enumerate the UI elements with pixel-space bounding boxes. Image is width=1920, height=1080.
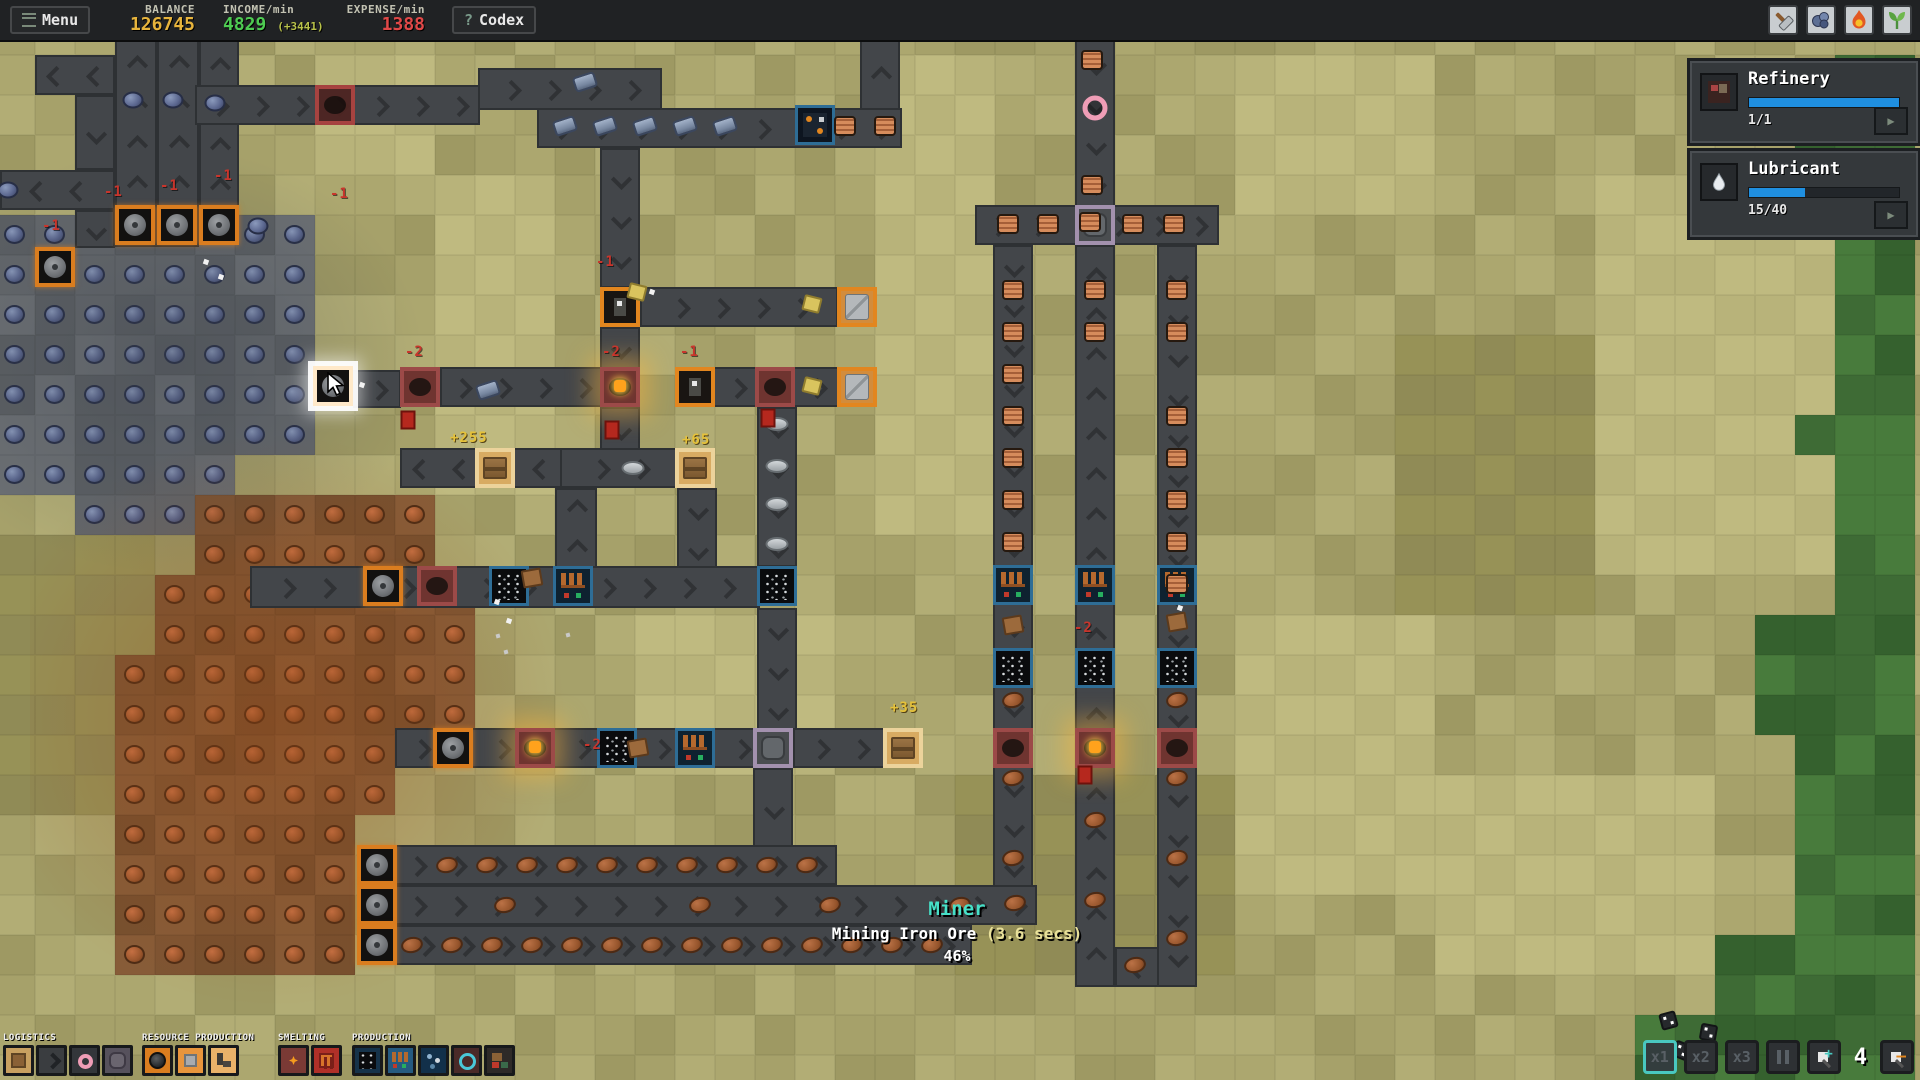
terrain-tile: [1595, 695, 1635, 735]
furnace-machine[interactable]: [993, 728, 1033, 768]
terrain-tile: [235, 895, 275, 935]
copper-ore-deposit: [124, 905, 145, 924]
terrain-tile: [1555, 775, 1595, 815]
terrain-tile: [1675, 935, 1715, 975]
miner-machine[interactable]: [115, 205, 155, 245]
terrain-tile: [875, 655, 915, 695]
storage-build-button[interactable]: [3, 1045, 34, 1076]
conveyor-belt[interactable]: [353, 370, 401, 408]
terrain-tile: [1795, 295, 1835, 335]
terrain-tile: [875, 575, 915, 615]
terrain-tile: [1435, 735, 1475, 775]
terrain-tile: [1595, 375, 1635, 415]
miner-machine[interactable]: [357, 925, 397, 965]
terrain-tile: [555, 295, 595, 335]
terrain-tile: [1755, 975, 1795, 1015]
iron-ore-deposit: [164, 305, 185, 324]
terrain-tile: [1315, 815, 1355, 855]
terrain-tile: [1715, 535, 1755, 575]
belt-arrow: [1004, 257, 1025, 278]
terrain-tile: [1235, 335, 1275, 375]
conveyor-belt[interactable]: [395, 885, 1037, 925]
conveyor-build-button[interactable]: [36, 1045, 67, 1076]
terrain-tile: [1435, 295, 1475, 335]
crusher-machine[interactable]: [1075, 648, 1115, 688]
terrain-tile: [1395, 655, 1435, 695]
belt-arrow: [1168, 467, 1189, 488]
terrain-tile: [795, 575, 835, 615]
terrain-tile: [1315, 335, 1355, 375]
miner-machine[interactable]: [35, 247, 75, 287]
terrain-tile: [1715, 335, 1755, 375]
miner-machine[interactable]: [357, 845, 397, 885]
terrain-tile: [1475, 135, 1515, 175]
conveyor-belt[interactable]: [35, 55, 115, 95]
crusher-machine[interactable]: [757, 566, 797, 606]
assembler-machine[interactable]: [1075, 565, 1115, 605]
terrain-tile: [1875, 975, 1915, 1015]
conveyor-belt[interactable]: [677, 488, 717, 570]
terrain-tile: [0, 695, 35, 735]
furnace-machine[interactable]: [755, 367, 795, 407]
terrain-tile: [1155, 1015, 1195, 1055]
terrain-tile: [155, 575, 195, 615]
terrain-tile: [1515, 495, 1555, 535]
furnace-machine[interactable]: [515, 728, 555, 768]
belt-arrow: [636, 578, 657, 599]
terrain-tile: [475, 175, 515, 215]
terrain-tile: [1235, 535, 1275, 575]
terrain-tile: [75, 815, 115, 855]
terrain-tile: [0, 535, 35, 575]
platem-build-button[interactable]: [175, 1045, 206, 1076]
extractor-machine[interactable]: [675, 367, 715, 407]
terrain-tile: [1755, 775, 1795, 815]
floating-text: -1: [330, 186, 349, 202]
terrain-tile: [1475, 775, 1515, 815]
terrain-tile: [1275, 135, 1315, 175]
crate-machine[interactable]: [883, 728, 923, 768]
belt-arrow: [1168, 787, 1189, 808]
extract-build-button[interactable]: [208, 1045, 239, 1076]
miner-machine[interactable]: [357, 885, 397, 925]
copper-ore-deposit: [324, 505, 345, 524]
terrain-tile: [1475, 1015, 1515, 1055]
iron-ore-deposit: [4, 345, 25, 364]
copper-ore-deposit: [204, 865, 225, 884]
terrain-tile: [1635, 55, 1675, 95]
copper-ore-deposit: [124, 825, 145, 844]
zoom-level: 4: [1854, 1045, 1867, 1070]
belt-arrow: [501, 80, 522, 101]
platem-machine[interactable]: [837, 287, 877, 327]
terrain-tile: [1715, 935, 1755, 975]
terrain-tile: [1795, 695, 1835, 735]
belt-arrow: [688, 500, 709, 521]
terrain-tile: [1395, 535, 1435, 575]
terrain-tile: [1275, 895, 1315, 935]
terrain-tile: [1195, 815, 1235, 855]
plate-item-item: [766, 537, 789, 551]
miner-machine[interactable]: [199, 205, 239, 245]
terrain-tile: [1395, 695, 1435, 735]
crate-machine[interactable]: [475, 448, 515, 488]
terrain-tile: [1235, 175, 1275, 215]
furn1-build-button[interactable]: [278, 1045, 309, 1076]
miner-machine[interactable]: [313, 366, 353, 406]
crusher-machine[interactable]: [993, 648, 1033, 688]
terrain-tile: [1355, 335, 1395, 375]
terrain-tile: [1275, 575, 1315, 615]
terrain-tile: [475, 255, 515, 295]
terrain-tile: [195, 255, 235, 295]
terrain-tile: [35, 335, 75, 375]
crate-machine[interactable]: [675, 448, 715, 488]
terrain-tile: [1875, 255, 1915, 295]
copper-ore-deposit: [124, 945, 145, 964]
floating-text: +35: [890, 700, 918, 716]
terrain-tile: [1715, 415, 1755, 455]
terrain-tile: [395, 215, 435, 255]
terrain-tile: [1795, 895, 1835, 935]
belt-arrow: [127, 134, 148, 155]
terrain-tile: [275, 655, 315, 695]
belt-arrow: [491, 739, 512, 760]
play-button[interactable]: ▶: [1874, 107, 1908, 135]
terrain-tile: [1475, 295, 1515, 335]
terrain-tile: [235, 295, 275, 335]
production-card-refinery[interactable]: Refinery 1/1 ▶: [1687, 58, 1920, 146]
speed-x3-button[interactable]: x3: [1725, 1040, 1759, 1074]
coil-item: [997, 214, 1019, 234]
terrain-tile: [1915, 295, 1920, 335]
belt-arrow: [1188, 216, 1209, 237]
terrain-tile: [1475, 975, 1515, 1015]
belt-arrow: [850, 739, 871, 760]
copper-ore-deposit: [164, 625, 185, 644]
conveyor-belt[interactable]: [478, 68, 662, 110]
conveyor-belt[interactable]: [440, 367, 602, 407]
furnace-machine[interactable]: [600, 367, 640, 407]
terrain-tile: [1435, 135, 1475, 175]
conveyor-belt[interactable]: [75, 95, 115, 170]
terrain-tile: [1595, 735, 1635, 775]
furnace-machine[interactable]: [417, 566, 457, 606]
belt-arrow: [86, 66, 107, 87]
terrain-tile: [1355, 695, 1395, 735]
belt-arrow: [1086, 134, 1107, 155]
terrain-tile: [835, 775, 875, 815]
terrain-tile: [1355, 415, 1395, 455]
terrain-tile: [1675, 575, 1715, 615]
terrain-tile: [1595, 535, 1635, 575]
copper-ore-deposit: [244, 665, 265, 684]
terrain-tile: [1435, 255, 1475, 295]
terrain-tile: [195, 375, 235, 415]
conveyor-belt[interactable]: [793, 728, 885, 768]
terrain-tile: [75, 295, 115, 335]
terrain-tile: [115, 535, 155, 575]
terrain-tile: [915, 455, 955, 495]
terrain-tile: [715, 55, 755, 95]
copper-ore-deposit: [164, 705, 185, 724]
terrain-tile: [1675, 615, 1715, 655]
assembler-machine[interactable]: [675, 728, 715, 768]
flame-icon[interactable]: [1844, 5, 1874, 35]
iron-ore-deposit: [164, 425, 185, 444]
furn2-build-button[interactable]: [311, 1045, 342, 1076]
terrain-tile: [235, 855, 275, 895]
terrain-tile: [235, 335, 275, 375]
terrain-tile: [1435, 975, 1475, 1015]
splitter-machine[interactable]: [753, 728, 793, 768]
terrain-tile: [1395, 855, 1435, 895]
terrain-tile: [1635, 935, 1675, 975]
terrain-tile: [915, 535, 955, 575]
terrain-tile: [1355, 935, 1395, 975]
copper-ore-deposit: [164, 945, 185, 964]
coil-item: [1122, 214, 1144, 234]
terrain-tile: [195, 295, 235, 335]
conveyor-belt[interactable]: [1075, 245, 1115, 987]
terrain-tile: [1675, 975, 1715, 1015]
tunnel-build-button[interactable]: [69, 1045, 100, 1076]
terrain-tile: [155, 335, 195, 375]
terrain-tile: [715, 495, 755, 535]
zoom-in-button[interactable]: +: [1807, 1040, 1841, 1074]
furnace-machine[interactable]: [315, 85, 355, 125]
conveyor-belt[interactable]: [757, 608, 797, 730]
ore-icon[interactable]: [1806, 5, 1836, 35]
terrain-tile: [1475, 575, 1515, 615]
terrain-tile: [1475, 655, 1515, 695]
terrain-tile: [0, 575, 35, 615]
copper-ore-deposit: [204, 825, 225, 844]
terrain-tile: [1555, 415, 1595, 455]
terrain-tile: [475, 135, 515, 175]
terrain-tile: [1635, 415, 1675, 455]
belt-arrow: [1086, 907, 1107, 928]
pause-icon: [1777, 1050, 1781, 1064]
terrain-tile: [1795, 655, 1835, 695]
miner-machine[interactable]: [363, 566, 403, 606]
terrain-tile: [275, 335, 315, 375]
terrain-tile: [1275, 655, 1315, 695]
conveyor-belt[interactable]: [560, 448, 677, 488]
terrain-tile: [355, 695, 395, 735]
terrain-tile: [1795, 775, 1835, 815]
iron-ore-deposit: [124, 265, 145, 284]
terrain-tile: [1715, 815, 1755, 855]
balance-stat: BALANCE 126745: [90, 3, 195, 33]
belt-arrow: [607, 896, 628, 917]
copper-ore-deposit: [164, 865, 185, 884]
terrain-tile: [1635, 855, 1675, 895]
furnace-machine[interactable]: [1075, 728, 1115, 768]
furnace-machine[interactable]: [1157, 728, 1197, 768]
production-card-lubricant[interactable]: Lubricant 15/40 ▶: [1687, 148, 1920, 240]
terrain-tile: [1275, 775, 1315, 815]
terrain-tile: [1035, 255, 1075, 295]
terrain-tile: [1835, 495, 1875, 535]
wirem-machine[interactable]: [795, 105, 835, 145]
terrain-tile: [955, 335, 995, 375]
terrain-tile: [1115, 55, 1155, 95]
coil-item: [1166, 448, 1188, 468]
terrain-tile: [1755, 655, 1795, 695]
terrain-tile: [1675, 455, 1715, 495]
copper-ore-deposit: [164, 905, 185, 924]
iron-ore-deposit: [124, 345, 145, 364]
pause-button[interactable]: [1766, 1040, 1800, 1074]
belt-arrow: [447, 896, 468, 917]
terrain-tile: [1595, 175, 1635, 215]
crusher-machine[interactable]: [1157, 648, 1197, 688]
terrain-tile: [1355, 535, 1395, 575]
terrain-tile: [275, 815, 315, 855]
terrain-tile: [315, 415, 355, 455]
assembler-machine[interactable]: [993, 565, 1033, 605]
terrain-tile: [1035, 895, 1075, 935]
terrain-tile: [1115, 375, 1155, 415]
terrain-tile: [515, 495, 555, 535]
belt-arrow: [1086, 707, 1107, 728]
conveyor-belt[interactable]: [860, 40, 900, 110]
conveyor-belt[interactable]: [555, 488, 597, 568]
floating-text: -2: [1074, 620, 1093, 636]
terrain-tile: [1755, 295, 1795, 335]
refinery-build-button[interactable]: [451, 1045, 482, 1076]
terrain-tile: [1235, 55, 1275, 95]
terrain-tile: [1315, 735, 1355, 775]
terrain-tile: [715, 215, 755, 255]
codex-button[interactable]: ? Codex: [452, 6, 536, 34]
terrain-tile: [1355, 255, 1395, 295]
terrain-tile: [955, 695, 995, 735]
terrain-tile: [275, 615, 315, 655]
belt-arrow: [527, 896, 548, 917]
terrain-tile: [1115, 335, 1155, 375]
terrain-tile: [1235, 95, 1275, 135]
terrain-tile: [1195, 975, 1235, 1015]
balance-value: 126745: [90, 16, 195, 33]
assembler-machine[interactable]: [553, 566, 593, 606]
build-group: RESOURCE PRODUCTION: [142, 1033, 254, 1076]
terrain-tile: [675, 55, 715, 95]
zoom-out-button[interactable]: –: [1880, 1040, 1914, 1074]
terrain-tile: [755, 975, 795, 1015]
prod3-build-button[interactable]: [418, 1045, 449, 1076]
red-item-item: [761, 409, 776, 428]
terrain-tile: [235, 615, 275, 655]
miner-machine[interactable]: [433, 728, 473, 768]
terrain-tile: [1915, 415, 1920, 455]
terrain-tile: [1515, 655, 1555, 695]
belt-arrow: [1086, 827, 1107, 848]
furnace-machine[interactable]: [400, 367, 440, 407]
map-canvas[interactable]: -1-1-1-1-1-1-1-2-2-2-2+255+65+35: [0, 0, 1920, 1080]
coil-item: [874, 116, 896, 136]
terrain-tile: [1235, 415, 1275, 455]
play-button[interactable]: ▶: [1874, 201, 1908, 229]
menu-button[interactable]: Menu: [10, 6, 90, 34]
hammer-icon[interactable]: [1768, 5, 1798, 35]
iron-ore-deposit: [164, 465, 185, 484]
factory-build-button[interactable]: [484, 1045, 515, 1076]
iron-ore-deposit: [164, 505, 185, 524]
terrain-tile: [635, 495, 675, 535]
terrain-tile: [555, 215, 595, 255]
terrain-tile: [1675, 855, 1715, 895]
miner-build-button[interactable]: [142, 1045, 173, 1076]
terrain-tile: [1795, 455, 1835, 495]
terrain-tile: [1835, 655, 1875, 695]
terrain-tile: [435, 975, 475, 1015]
terrain-tile: [1515, 575, 1555, 615]
terrain-tile: [115, 415, 155, 455]
speed-x1-button[interactable]: x1: [1643, 1040, 1677, 1074]
terrain-tile: [1555, 255, 1595, 295]
coil-item: [1002, 532, 1024, 552]
conveyor-belt[interactable]: [199, 40, 239, 212]
terrain-tile: [1875, 735, 1915, 775]
terrain-tile: [475, 975, 515, 1015]
belt-arrow: [572, 378, 593, 399]
terrain-tile: [1435, 415, 1475, 455]
terrain-tile: [75, 735, 115, 775]
iron-ore-deposit: [204, 345, 225, 364]
terrain-tile: [1635, 95, 1675, 135]
prod1-build-button[interactable]: [352, 1045, 383, 1076]
terrain-tile: [1435, 175, 1475, 215]
terrain-tile: [1835, 415, 1875, 455]
terrain-tile: [1355, 495, 1395, 535]
terrain-tile: [1435, 495, 1475, 535]
terrain-tile: [875, 255, 915, 295]
terrain-tile: [1355, 135, 1395, 175]
prod2-build-button[interactable]: [385, 1045, 416, 1076]
belt-arrow: [412, 459, 433, 480]
miner-machine[interactable]: [157, 205, 197, 245]
terrain-tile: [155, 415, 195, 455]
terrain-tile: [315, 615, 355, 655]
terrain-tile: [1395, 735, 1435, 775]
belt-arrow: [727, 896, 748, 917]
copper-ore-deposit: [284, 625, 305, 644]
speed-x2-button[interactable]: x2: [1684, 1040, 1718, 1074]
terrain-tile: [115, 575, 155, 615]
terrain-tile: [195, 695, 235, 735]
pad-build-button[interactable]: [102, 1045, 133, 1076]
terrain-tile: [1555, 975, 1595, 1015]
terrain-tile: [1275, 695, 1315, 735]
terrain-tile: [35, 855, 75, 895]
terrain-tile: [75, 375, 115, 415]
terrain-tile: [35, 615, 75, 655]
belt-arrow: [1168, 947, 1189, 968]
terrain-tile: [355, 615, 395, 655]
terrain-tile: [115, 895, 155, 935]
terrain-tile: [1355, 375, 1395, 415]
terrain-tile: [1035, 695, 1075, 735]
conveyor-belt[interactable]: [75, 210, 115, 248]
platem-machine[interactable]: [837, 367, 877, 407]
sprout-icon[interactable]: [1882, 5, 1912, 35]
conveyor-belt[interactable]: [753, 768, 793, 847]
belt-arrow: [452, 459, 473, 480]
terrain-tile: [1635, 575, 1675, 615]
red-item-item: [605, 421, 620, 440]
